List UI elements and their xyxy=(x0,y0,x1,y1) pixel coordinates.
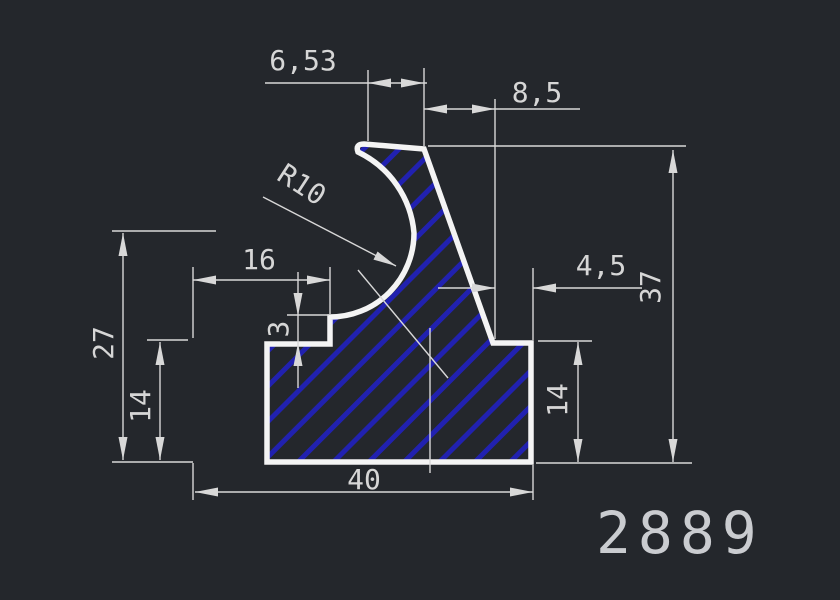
arrow-14-left-top xyxy=(156,342,165,365)
dim-text-14-left: 14 xyxy=(124,389,157,423)
arrow-37-top xyxy=(669,150,678,173)
radius-text-r10: R10 xyxy=(272,157,332,212)
arrow-14-right-bot xyxy=(574,439,583,462)
arrow-r10-leader xyxy=(373,252,398,270)
dim-text-3: 3 xyxy=(262,321,295,338)
arrow-14-right-top xyxy=(574,342,583,365)
arrow-37-bottom xyxy=(669,439,678,462)
dim-text-4-5: 4,5 xyxy=(576,249,627,282)
arrow-6-53-left xyxy=(368,79,391,88)
arrow-4-5-right xyxy=(533,284,556,293)
arrow-16-left xyxy=(193,276,216,285)
arrow-40-left xyxy=(195,488,218,497)
arrow-27-bottom xyxy=(119,437,128,460)
arrow-8-5-left xyxy=(424,105,447,114)
arrow-3-top xyxy=(294,293,303,316)
arrow-14-left-bot xyxy=(156,437,165,460)
dim-text-8-5: 8,5 xyxy=(512,76,563,109)
arrow-16-right xyxy=(307,276,330,285)
dim-text-14-right: 14 xyxy=(541,383,574,417)
part-number: 2889 xyxy=(596,498,826,568)
dim-text-6-53: 6,53 xyxy=(269,44,336,77)
dim-text-40: 40 xyxy=(347,463,381,496)
arrow-40-right xyxy=(510,488,533,497)
arrow-27-top xyxy=(119,233,128,256)
dim-text-27: 27 xyxy=(87,326,120,360)
arrow-4-5-left xyxy=(472,284,495,293)
arrow-8-5-right xyxy=(472,105,495,114)
dim-text-37: 37 xyxy=(634,270,667,304)
dim-text-16: 16 xyxy=(242,243,276,276)
cad-drawing-stage: 6,538,5374,527141631440R10 2889 xyxy=(0,0,840,600)
arrow-6-53-right xyxy=(401,79,424,88)
